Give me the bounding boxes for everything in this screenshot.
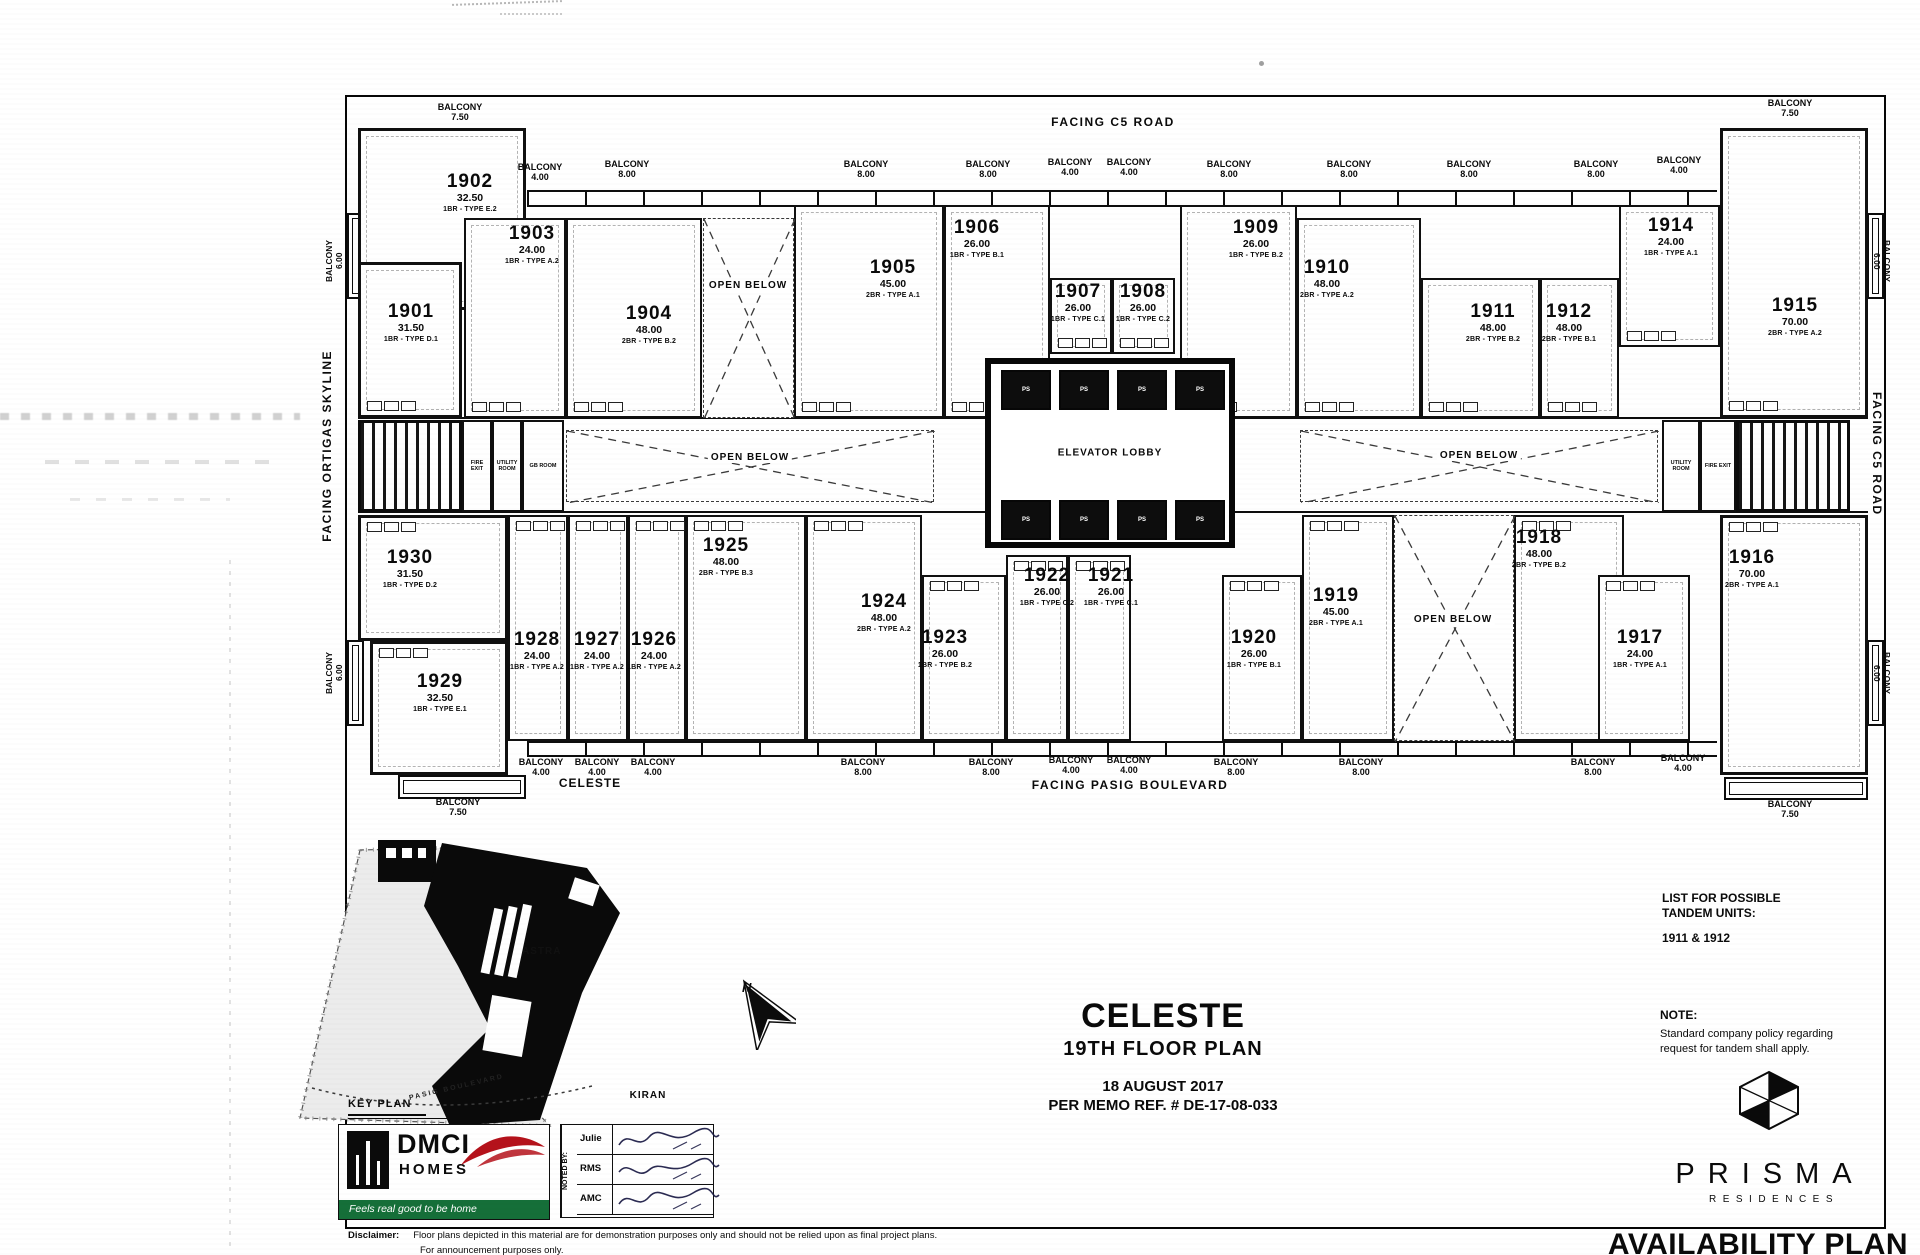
balcony-word: BALCONY bbox=[1661, 753, 1706, 763]
unit-1909-label: 190926.001BR - TYPE B.2 bbox=[1229, 218, 1283, 260]
unit-1905-outline bbox=[794, 205, 944, 418]
unit-number: 1928 bbox=[510, 630, 564, 650]
unit-1901-fixtures bbox=[367, 401, 416, 411]
unit-1911-fixtures bbox=[1429, 402, 1478, 412]
balcony-word: BALCONY bbox=[1107, 157, 1152, 167]
balcony-word: BALCONY bbox=[1657, 155, 1702, 165]
unit-1910-interior-lines bbox=[1304, 225, 1414, 411]
unit-area-sqm: 48.00 bbox=[857, 612, 911, 625]
unit-1929-label: 192932.501BR - TYPE E.1 bbox=[413, 672, 467, 714]
balcony-label-top: BALCONY8.00 bbox=[966, 159, 1011, 179]
unit-number: 1903 bbox=[505, 224, 559, 244]
unit-type: 2BR - TYPE A.2 bbox=[1768, 329, 1822, 338]
unit-type: 2BR - TYPE A.2 bbox=[1300, 291, 1354, 300]
unit-number: 1929 bbox=[413, 672, 467, 692]
unit-1917-label: 191724.001BR - TYPE A.1 bbox=[1613, 628, 1667, 670]
balcony-word: BALCONY bbox=[605, 159, 650, 169]
unit-1904-label: 190448.002BR - TYPE B.2 bbox=[622, 304, 676, 346]
balcony-dimension: 8.00 bbox=[1214, 767, 1259, 777]
balcony-dimension: 8.00 bbox=[1571, 767, 1616, 777]
unit-type: 1BR - TYPE C.1 bbox=[1084, 599, 1138, 608]
unit-1919-fixtures bbox=[1310, 521, 1359, 531]
unit-number: 1902 bbox=[443, 172, 497, 192]
unit-1912-outline bbox=[1540, 278, 1619, 418]
unit-1910-label: 191048.002BR - TYPE A.2 bbox=[1300, 258, 1354, 300]
unit-1929-fixtures bbox=[379, 648, 428, 658]
unit-type: 1BR - TYPE C.2 bbox=[1116, 315, 1170, 324]
corner-balcony bbox=[1724, 777, 1868, 800]
balcony-dimension: 4.00 bbox=[519, 767, 564, 777]
balcony-word: BALCONY bbox=[438, 102, 483, 112]
unit-area-sqm: 26.00 bbox=[1020, 586, 1074, 599]
unit-area-sqm: 70.00 bbox=[1768, 316, 1822, 329]
unit-1921-label: 192126.001BR - TYPE C.1 bbox=[1084, 566, 1138, 608]
availability-plan-title: AVAILABILITY PLAN bbox=[1608, 1228, 1908, 1255]
unit-1915-interior-lines bbox=[1728, 136, 1860, 410]
open-below-cross bbox=[1301, 431, 1659, 503]
balcony-label-side: BALCONY6.00 bbox=[324, 652, 344, 694]
balcony-label-top: BALCONY8.00 bbox=[844, 159, 889, 179]
unit-1915-fixtures bbox=[1729, 401, 1778, 411]
unit-1915-label: 191570.002BR - TYPE A.2 bbox=[1768, 296, 1822, 338]
unit-type: 2BR - TYPE B.2 bbox=[622, 337, 676, 346]
open-below-cross bbox=[704, 219, 795, 419]
unit-number: 1904 bbox=[622, 304, 676, 324]
balcony-word: BALCONY bbox=[575, 757, 620, 767]
unit-1911-outline bbox=[1421, 278, 1540, 418]
unit-type: 2BR - TYPE B.1 bbox=[1542, 335, 1596, 344]
balcony-dimension: 8.00 bbox=[1447, 169, 1492, 179]
scan-noise-streak bbox=[0, 413, 300, 420]
balcony-dimension: 8.00 bbox=[969, 767, 1014, 777]
corridor-room: UTILITY ROOM bbox=[1662, 420, 1700, 512]
unit-1905-interior-lines bbox=[801, 212, 937, 411]
unit-1907-fixtures bbox=[1058, 338, 1107, 348]
open-below-label: OPEN BELOW bbox=[708, 452, 792, 463]
balcony-dimension: 7.50 bbox=[436, 807, 481, 817]
balcony-word: BALCONY bbox=[1882, 240, 1892, 282]
corridor-room: FIRE EXIT bbox=[462, 420, 492, 512]
unit-area-sqm: 26.00 bbox=[950, 238, 1004, 251]
balcony-word: BALCONY bbox=[1571, 757, 1616, 767]
balcony-dimension: 6.00 bbox=[1872, 652, 1882, 694]
scan-noise-streak bbox=[45, 460, 280, 464]
balcony-label-top: BALCONY8.00 bbox=[1207, 159, 1252, 179]
unit-number: 1922 bbox=[1020, 566, 1074, 586]
unit-1906-label: 190626.001BR - TYPE B.1 bbox=[950, 218, 1004, 260]
unit-number: 1924 bbox=[857, 592, 911, 612]
side-balcony bbox=[347, 640, 364, 726]
unit-number: 1907 bbox=[1051, 282, 1105, 302]
unit-1923-fixtures bbox=[930, 581, 979, 591]
unit-area-sqm: 24.00 bbox=[510, 650, 564, 663]
balcony-word: BALCONY bbox=[966, 159, 1011, 169]
balcony-word: BALCONY bbox=[324, 652, 334, 694]
balcony-dimension: 8.00 bbox=[841, 767, 886, 777]
unit-area-sqm: 24.00 bbox=[627, 650, 681, 663]
key-plan-kiran-label: KIRAN bbox=[630, 1090, 667, 1101]
unit-1917-fixtures bbox=[1606, 581, 1655, 591]
unit-1927-label: 192724.001BR - TYPE A.2 bbox=[570, 630, 624, 672]
balcony-dimension: 4.00 bbox=[1661, 763, 1706, 773]
balcony-label-top: BALCONY4.00 bbox=[1107, 157, 1152, 177]
balcony-label-top: BALCONY8.00 bbox=[605, 159, 650, 179]
unit-area-sqm: 48.00 bbox=[1542, 322, 1596, 335]
scan-noise-mark bbox=[452, 0, 562, 6]
unit-number: 1921 bbox=[1084, 566, 1138, 586]
signature-scribble bbox=[613, 1155, 723, 1185]
note-line1: Standard company policy regarding bbox=[1660, 1027, 1833, 1042]
unit-area-sqm: 26.00 bbox=[1227, 648, 1281, 661]
balcony-dimension: 7.50 bbox=[1768, 809, 1813, 819]
unit-1910-fixtures bbox=[1305, 402, 1354, 412]
unit-1903-label: 190324.001BR - TYPE A.2 bbox=[505, 224, 559, 266]
balcony-label-bottom: BALCONY4.00 bbox=[575, 757, 620, 777]
unit-type: 1BR - TYPE D.1 bbox=[384, 335, 438, 344]
unit-number: 1918 bbox=[1512, 528, 1566, 548]
balcony-word: BALCONY bbox=[1339, 757, 1384, 767]
noted-by-name: RMS bbox=[577, 1155, 613, 1184]
balcony-word: BALCONY bbox=[436, 797, 481, 807]
unit-1904-fixtures bbox=[574, 402, 623, 412]
unit-type: 1BR - TYPE E.2 bbox=[443, 205, 497, 214]
unit-number: 1926 bbox=[627, 630, 681, 650]
open-below-area bbox=[1300, 430, 1658, 502]
open-below-label: OPEN BELOW bbox=[1411, 614, 1495, 625]
balcony-label-side: BALCONY6.00 bbox=[324, 240, 344, 282]
unit-type: 1BR - TYPE D.2 bbox=[383, 581, 437, 590]
balcony-word: BALCONY bbox=[1207, 159, 1252, 169]
unit-type: 1BR - TYPE B.2 bbox=[918, 661, 972, 670]
balcony-word: BALCONY bbox=[1768, 98, 1813, 108]
facing-label-right: FACING C5 ROAD bbox=[1870, 392, 1884, 516]
key-plan-celeste-label: CELESTE bbox=[559, 776, 621, 790]
balcony-label-side: BALCONY6.00 bbox=[1872, 240, 1892, 282]
unit-area-sqm: 32.50 bbox=[413, 692, 467, 705]
dmci-tower-icon bbox=[347, 1131, 389, 1189]
note-label: NOTE: bbox=[1660, 1008, 1833, 1023]
unit-1928-fixtures bbox=[516, 521, 565, 531]
balcony-word: BALCONY bbox=[1048, 157, 1093, 167]
balcony-label-bottom: BALCONY8.00 bbox=[1339, 757, 1384, 777]
elevator-car: PS bbox=[1175, 370, 1225, 410]
scanned-floor-plan-sheet: FACING C5 ROAD FACING ORTIGAS SKYLINE FA… bbox=[0, 0, 1920, 1255]
balcony-label-top: BALCONY8.00 bbox=[1447, 159, 1492, 179]
balcony-dimension: 8.00 bbox=[1207, 169, 1252, 179]
disclaimer-body: Floor plans depicted in this material ar… bbox=[413, 1230, 937, 1241]
balcony-dimension: 7.50 bbox=[438, 112, 483, 122]
unit-number: 1916 bbox=[1725, 548, 1779, 568]
unit-1903-fixtures bbox=[472, 402, 521, 412]
unit-area-sqm: 48.00 bbox=[1512, 548, 1566, 561]
balcony-label-bottom: BALCONY8.00 bbox=[1571, 757, 1616, 777]
dmci-tagline: Feels real good to be home bbox=[339, 1200, 549, 1219]
unit-number: 1906 bbox=[950, 218, 1004, 238]
balcony-label-bottom: BALCONY4.00 bbox=[519, 757, 564, 777]
corridor-room: UTILITY ROOM bbox=[492, 420, 522, 512]
unit-number: 1927 bbox=[570, 630, 624, 650]
scan-noise-mark bbox=[500, 13, 562, 15]
north-arrow-n: N bbox=[742, 980, 751, 995]
elevator-lobby-label: ELEVATOR LOBBY bbox=[1054, 448, 1167, 459]
unit-1923-label: 192326.001BR - TYPE B.2 bbox=[918, 628, 972, 670]
unit-area-sqm: 26.00 bbox=[1084, 586, 1138, 599]
balcony-word: BALCONY bbox=[844, 159, 889, 169]
scan-noise-dot bbox=[1259, 61, 1264, 66]
balcony-word: BALCONY bbox=[1574, 159, 1619, 169]
unit-type: 2BR - TYPE A.1 bbox=[1725, 581, 1779, 590]
noted-by-header: NOTED BY: bbox=[561, 1125, 578, 1217]
open-below-area bbox=[1394, 515, 1514, 741]
balcony-word: BALCONY bbox=[519, 757, 564, 767]
unit-1920-fixtures bbox=[1230, 581, 1279, 591]
tandem-units-value: 1911 & 1912 bbox=[1662, 931, 1781, 946]
stair-well bbox=[358, 420, 462, 512]
unit-type: 2BR - TYPE B.3 bbox=[699, 569, 753, 578]
balcony-dimension: 4.00 bbox=[575, 767, 620, 777]
open-below-area bbox=[703, 218, 794, 418]
key-plan-astra-label: ASTRA bbox=[522, 946, 561, 957]
unit-number: 1908 bbox=[1116, 282, 1170, 302]
dmci-red-swoosh bbox=[457, 1125, 547, 1171]
unit-area-sqm: 31.50 bbox=[383, 568, 437, 581]
unit-1914-fixtures bbox=[1627, 331, 1676, 341]
unit-number: 1911 bbox=[1466, 302, 1520, 322]
unit-number: 1915 bbox=[1768, 296, 1822, 316]
elevator-car: PS bbox=[1059, 370, 1109, 410]
prisma-wordmark: PRISMA bbox=[1675, 1158, 1864, 1191]
unit-1914-label: 191424.001BR - TYPE A.1 bbox=[1644, 216, 1698, 258]
unit-type: 1BR - TYPE A.1 bbox=[1644, 249, 1698, 258]
unit-1925-label: 192548.002BR - TYPE B.3 bbox=[699, 536, 753, 578]
balcony-label-bottom: BALCONY4.00 bbox=[631, 757, 676, 777]
unit-type: 2BR - TYPE B.2 bbox=[1466, 335, 1520, 344]
balcony-word: BALCONY bbox=[324, 240, 334, 282]
balcony-word: BALCONY bbox=[1447, 159, 1492, 169]
unit-1926-fixtures bbox=[636, 521, 685, 531]
key-plan-title-underline bbox=[348, 1114, 426, 1116]
unit-area-sqm: 48.00 bbox=[622, 324, 676, 337]
unit-1902-label: 190232.501BR - TYPE E.2 bbox=[443, 172, 497, 214]
unit-type: 1BR - TYPE A.2 bbox=[505, 257, 559, 266]
elevator-car: PS bbox=[1001, 500, 1051, 540]
balcony-dimension: 8.00 bbox=[966, 169, 1011, 179]
balcony-dimension: 7.50 bbox=[1768, 108, 1813, 118]
unit-1928-interior-lines bbox=[515, 522, 561, 734]
residences-wordmark: RESIDENCES bbox=[1709, 1194, 1839, 1205]
balcony-label-top: BALCONY8.00 bbox=[1327, 159, 1372, 179]
unit-type: 1BR - TYPE C.2 bbox=[1020, 599, 1074, 608]
balcony-label-top: BALCONY7.50 bbox=[438, 102, 483, 122]
unit-number: 1912 bbox=[1542, 302, 1596, 322]
unit-type: 1BR - TYPE B.1 bbox=[1227, 661, 1281, 670]
unit-1907-label: 190726.001BR - TYPE C.1 bbox=[1051, 282, 1105, 324]
elevator-car: PS bbox=[1117, 370, 1167, 410]
unit-type: 2BR - TYPE A.1 bbox=[1309, 619, 1363, 628]
dmci-homes-logo: DMCI HOMES Feels real good to be home bbox=[338, 1124, 550, 1220]
corridor-room: GB ROOM bbox=[522, 420, 564, 512]
unit-number: 1920 bbox=[1227, 628, 1281, 648]
unit-type: 1BR - TYPE E.1 bbox=[413, 705, 467, 714]
balcony-dimension: 8.00 bbox=[1574, 169, 1619, 179]
unit-1930-label: 193031.501BR - TYPE D.2 bbox=[383, 548, 437, 590]
elevator-car: PS bbox=[1175, 500, 1225, 540]
tandem-units-note: LIST FOR POSSIBLE TANDEM UNITS: 1911 & 1… bbox=[1662, 891, 1781, 946]
corridor-room: FIRE EXIT bbox=[1700, 420, 1736, 512]
unit-1919-label: 191945.002BR - TYPE A.1 bbox=[1309, 586, 1363, 628]
memo-reference: PER MEMO REF. # DE-17-08-033 bbox=[1048, 1096, 1277, 1116]
balcony-label-bottom: BALCONY7.50 bbox=[436, 797, 481, 817]
unit-1905-fixtures bbox=[802, 402, 851, 412]
balcony-dimension: 6.00 bbox=[1872, 240, 1882, 282]
unit-number: 1914 bbox=[1644, 216, 1698, 236]
unit-area-sqm: 31.50 bbox=[384, 322, 438, 335]
noted-by-row: RMS bbox=[577, 1155, 713, 1185]
facing-label-top: FACING C5 ROAD bbox=[1051, 115, 1175, 129]
elevator-car: PS bbox=[1001, 370, 1051, 410]
balcony-word: BALCONY bbox=[518, 162, 563, 172]
unit-1928-outline bbox=[508, 515, 568, 741]
open-below-cross bbox=[1395, 516, 1515, 742]
unit-area-sqm: 26.00 bbox=[918, 648, 972, 661]
unit-number: 1925 bbox=[699, 536, 753, 556]
tandem-line2: TANDEM UNITS: bbox=[1662, 906, 1781, 921]
noted-by-row: Julie bbox=[577, 1125, 713, 1155]
unit-type: 2BR - TYPE A.2 bbox=[857, 625, 911, 634]
unit-1926-outline bbox=[628, 515, 686, 741]
unit-1918-label: 191848.002BR - TYPE B.2 bbox=[1512, 528, 1566, 570]
balcony-dimension: 4.00 bbox=[1107, 167, 1152, 177]
unit-1908-label: 190826.001BR - TYPE C.2 bbox=[1116, 282, 1170, 324]
unit-area-sqm: 48.00 bbox=[699, 556, 753, 569]
unit-1915-outline bbox=[1720, 128, 1868, 418]
unit-1930-fixtures bbox=[367, 522, 416, 532]
unit-area-sqm: 24.00 bbox=[1644, 236, 1698, 249]
unit-1925-fixtures bbox=[694, 521, 743, 531]
unit-area-sqm: 26.00 bbox=[1229, 238, 1283, 251]
balcony-label-top: BALCONY4.00 bbox=[1048, 157, 1093, 177]
facing-label-bottom: FACING PASIG BOULEVARD bbox=[1032, 778, 1229, 792]
unit-type: 1BR - TYPE B.1 bbox=[950, 251, 1004, 260]
open-below-label: OPEN BELOW bbox=[1437, 450, 1521, 461]
unit-1916-label: 191670.002BR - TYPE A.1 bbox=[1725, 548, 1779, 590]
unit-area-sqm: 24.00 bbox=[1613, 648, 1667, 661]
unit-1919-outline bbox=[1302, 515, 1394, 741]
balcony-word: BALCONY bbox=[631, 757, 676, 767]
scan-noise-dotline bbox=[229, 560, 231, 1250]
balcony-dimension: 4.00 bbox=[631, 767, 676, 777]
unit-number: 1930 bbox=[383, 548, 437, 568]
unit-1926-label: 192624.001BR - TYPE A.2 bbox=[627, 630, 681, 672]
unit-1924-fixtures bbox=[814, 521, 863, 531]
unit-area-sqm: 48.00 bbox=[1300, 278, 1354, 291]
balcony-dimension: 6.00 bbox=[334, 240, 344, 282]
unit-1910-outline bbox=[1297, 218, 1421, 418]
unit-area-sqm: 32.50 bbox=[443, 192, 497, 205]
unit-number: 1923 bbox=[918, 628, 972, 648]
unit-1920-label: 192026.001BR - TYPE B.1 bbox=[1227, 628, 1281, 670]
unit-1901-label: 190131.501BR - TYPE D.1 bbox=[384, 302, 438, 344]
note-line2: request for tandem shall apply. bbox=[1660, 1042, 1833, 1057]
balcony-word: BALCONY bbox=[1214, 757, 1259, 767]
signature-scribble bbox=[613, 1125, 723, 1155]
balcony-dimension: 8.00 bbox=[1327, 169, 1372, 179]
unit-area-sqm: 45.00 bbox=[1309, 606, 1363, 619]
unit-number: 1905 bbox=[866, 258, 920, 278]
balcony-label-bottom: BALCONY8.00 bbox=[969, 757, 1014, 777]
unit-1911-label: 191148.002BR - TYPE B.2 bbox=[1466, 302, 1520, 344]
unit-area-sqm: 26.00 bbox=[1116, 302, 1170, 315]
unit-1912-label: 191248.002BR - TYPE B.1 bbox=[1542, 302, 1596, 344]
balcony-dimension: 4.00 bbox=[1107, 765, 1152, 775]
signature-scribble bbox=[613, 1185, 723, 1215]
balcony-label-bottom: BALCONY8.00 bbox=[841, 757, 886, 777]
balcony-label-top: BALCONY4.00 bbox=[518, 162, 563, 182]
balcony-label-top: BALCONY4.00 bbox=[1657, 155, 1702, 175]
balcony-dimension: 4.00 bbox=[518, 172, 563, 182]
unit-1905-label: 190545.002BR - TYPE A.1 bbox=[866, 258, 920, 300]
key-plan-map bbox=[282, 788, 772, 1138]
unit-type: 2BR - TYPE A.1 bbox=[866, 291, 920, 300]
unit-type: 2BR - TYPE B.2 bbox=[1512, 561, 1566, 570]
unit-1919-interior-lines bbox=[1309, 522, 1387, 734]
unit-1926-interior-lines bbox=[635, 522, 679, 734]
balcony-dimension: 6.00 bbox=[334, 652, 344, 694]
balcony-label-side: BALCONY6.00 bbox=[1872, 652, 1892, 694]
policy-note: NOTE: Standard company policy regarding … bbox=[1660, 1008, 1833, 1057]
north-arrow-icon bbox=[726, 972, 796, 1050]
unit-1927-fixtures bbox=[576, 521, 625, 531]
noted-by-row: AMC bbox=[577, 1185, 713, 1215]
balcony-word: BALCONY bbox=[1882, 652, 1892, 694]
unit-1908-fixtures bbox=[1120, 338, 1169, 348]
title-block: CELESTE 19TH FLOOR PLAN 18 AUGUST 2017 P… bbox=[1048, 998, 1277, 1116]
balcony-word: BALCONY bbox=[1049, 755, 1094, 765]
plan-date: 18 AUGUST 2017 bbox=[1048, 1078, 1277, 1096]
scan-noise-streak bbox=[70, 498, 230, 501]
balcony-word: BALCONY bbox=[841, 757, 886, 767]
balcony-word: BALCONY bbox=[1768, 799, 1813, 809]
balcony-dimension: 4.00 bbox=[1048, 167, 1093, 177]
noted-by-name: Julie bbox=[577, 1125, 613, 1154]
unit-area-sqm: 24.00 bbox=[570, 650, 624, 663]
unit-1912-fixtures bbox=[1548, 402, 1597, 412]
unit-number: 1901 bbox=[384, 302, 438, 322]
balcony-label-bottom: BALCONY8.00 bbox=[1214, 757, 1259, 777]
balcony-dimension: 8.00 bbox=[1339, 767, 1384, 777]
elevator-car: PS bbox=[1059, 500, 1109, 540]
unit-type: 1BR - TYPE C.1 bbox=[1051, 315, 1105, 324]
unit-type: 1BR - TYPE B.2 bbox=[1229, 251, 1283, 260]
facing-label-left: FACING ORTIGAS SKYLINE bbox=[320, 350, 334, 542]
balcony-label-bottom: BALCONY7.50 bbox=[1768, 799, 1813, 819]
key-plan-title-underline bbox=[348, 1118, 498, 1119]
balcony-label-top: BALCONY8.00 bbox=[1574, 159, 1619, 179]
balcony-label-bottom: BALCONY4.00 bbox=[1661, 753, 1706, 773]
balcony-word: BALCONY bbox=[969, 757, 1014, 767]
balcony-dimension: 8.00 bbox=[844, 169, 889, 179]
unit-area-sqm: 45.00 bbox=[866, 278, 920, 291]
disclaimer-text: Disclaimer:Floor plans depicted in this … bbox=[348, 1230, 937, 1241]
floor-title: 19TH FLOOR PLAN bbox=[1048, 1034, 1277, 1064]
project-title: CELESTE bbox=[1048, 998, 1277, 1034]
unit-1928-label: 192824.001BR - TYPE A.2 bbox=[510, 630, 564, 672]
balcony-strip-top bbox=[527, 190, 1717, 207]
unit-number: 1909 bbox=[1229, 218, 1283, 238]
balcony-label-top: BALCONY7.50 bbox=[1768, 98, 1813, 118]
unit-1924-label: 192448.002BR - TYPE A.2 bbox=[857, 592, 911, 634]
tandem-line1: LIST FOR POSSIBLE bbox=[1662, 891, 1781, 906]
